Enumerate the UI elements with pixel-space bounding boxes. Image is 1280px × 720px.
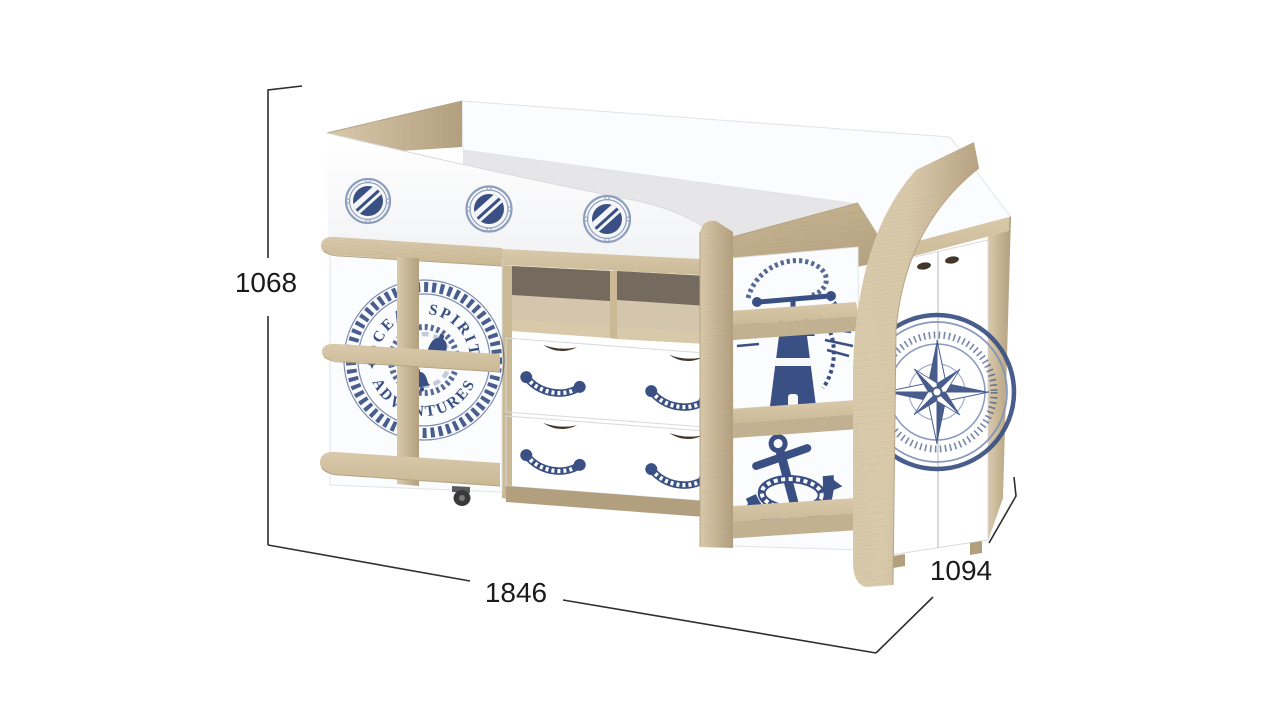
- cubby: [512, 266, 610, 338]
- depth-dimension-label: 1094: [930, 555, 992, 586]
- drawer-scoop: [669, 433, 703, 440]
- rope-handle-icon[interactable]: [519, 449, 586, 473]
- rope-handle-icon[interactable]: [519, 371, 586, 395]
- drawer-scoop: [543, 423, 577, 430]
- width-dimension: 1846: [268, 545, 876, 653]
- product-image: 1068 1846 1094: [0, 0, 1280, 720]
- ladder-stile: [700, 221, 733, 548]
- shelf-divider: [397, 257, 419, 486]
- height-dimension-label: 1068: [235, 267, 297, 298]
- wardrobe-foot: [893, 554, 905, 568]
- cubby: [617, 271, 708, 344]
- drawer-scoop: [543, 345, 577, 352]
- chest-left-stile: [502, 265, 512, 500]
- drawer[interactable]: [506, 338, 718, 428]
- drawer-scoop: [669, 355, 703, 362]
- loft-bed-illustration: OCEAN SPIRIT ADVENTURES: [320, 101, 1014, 587]
- corner-shelf-unit: OCEAN SPIRIT ADVENTURES: [320, 237, 504, 506]
- cubby-divider: [610, 271, 617, 339]
- ladder-shelves: [700, 221, 860, 550]
- caster-wheel: [452, 486, 471, 506]
- wardrobe-right-side: [988, 216, 1011, 541]
- door-handle-notch[interactable]: [944, 255, 959, 264]
- door-handle-notch[interactable]: [916, 261, 931, 270]
- width-dimension-label: 1846: [485, 577, 547, 608]
- wardrobe-foot: [970, 541, 982, 555]
- loft-bed-figure: 1068 1846 1094: [0, 0, 1280, 720]
- height-dimension: 1068: [235, 86, 302, 545]
- chest-plinth: [506, 486, 718, 518]
